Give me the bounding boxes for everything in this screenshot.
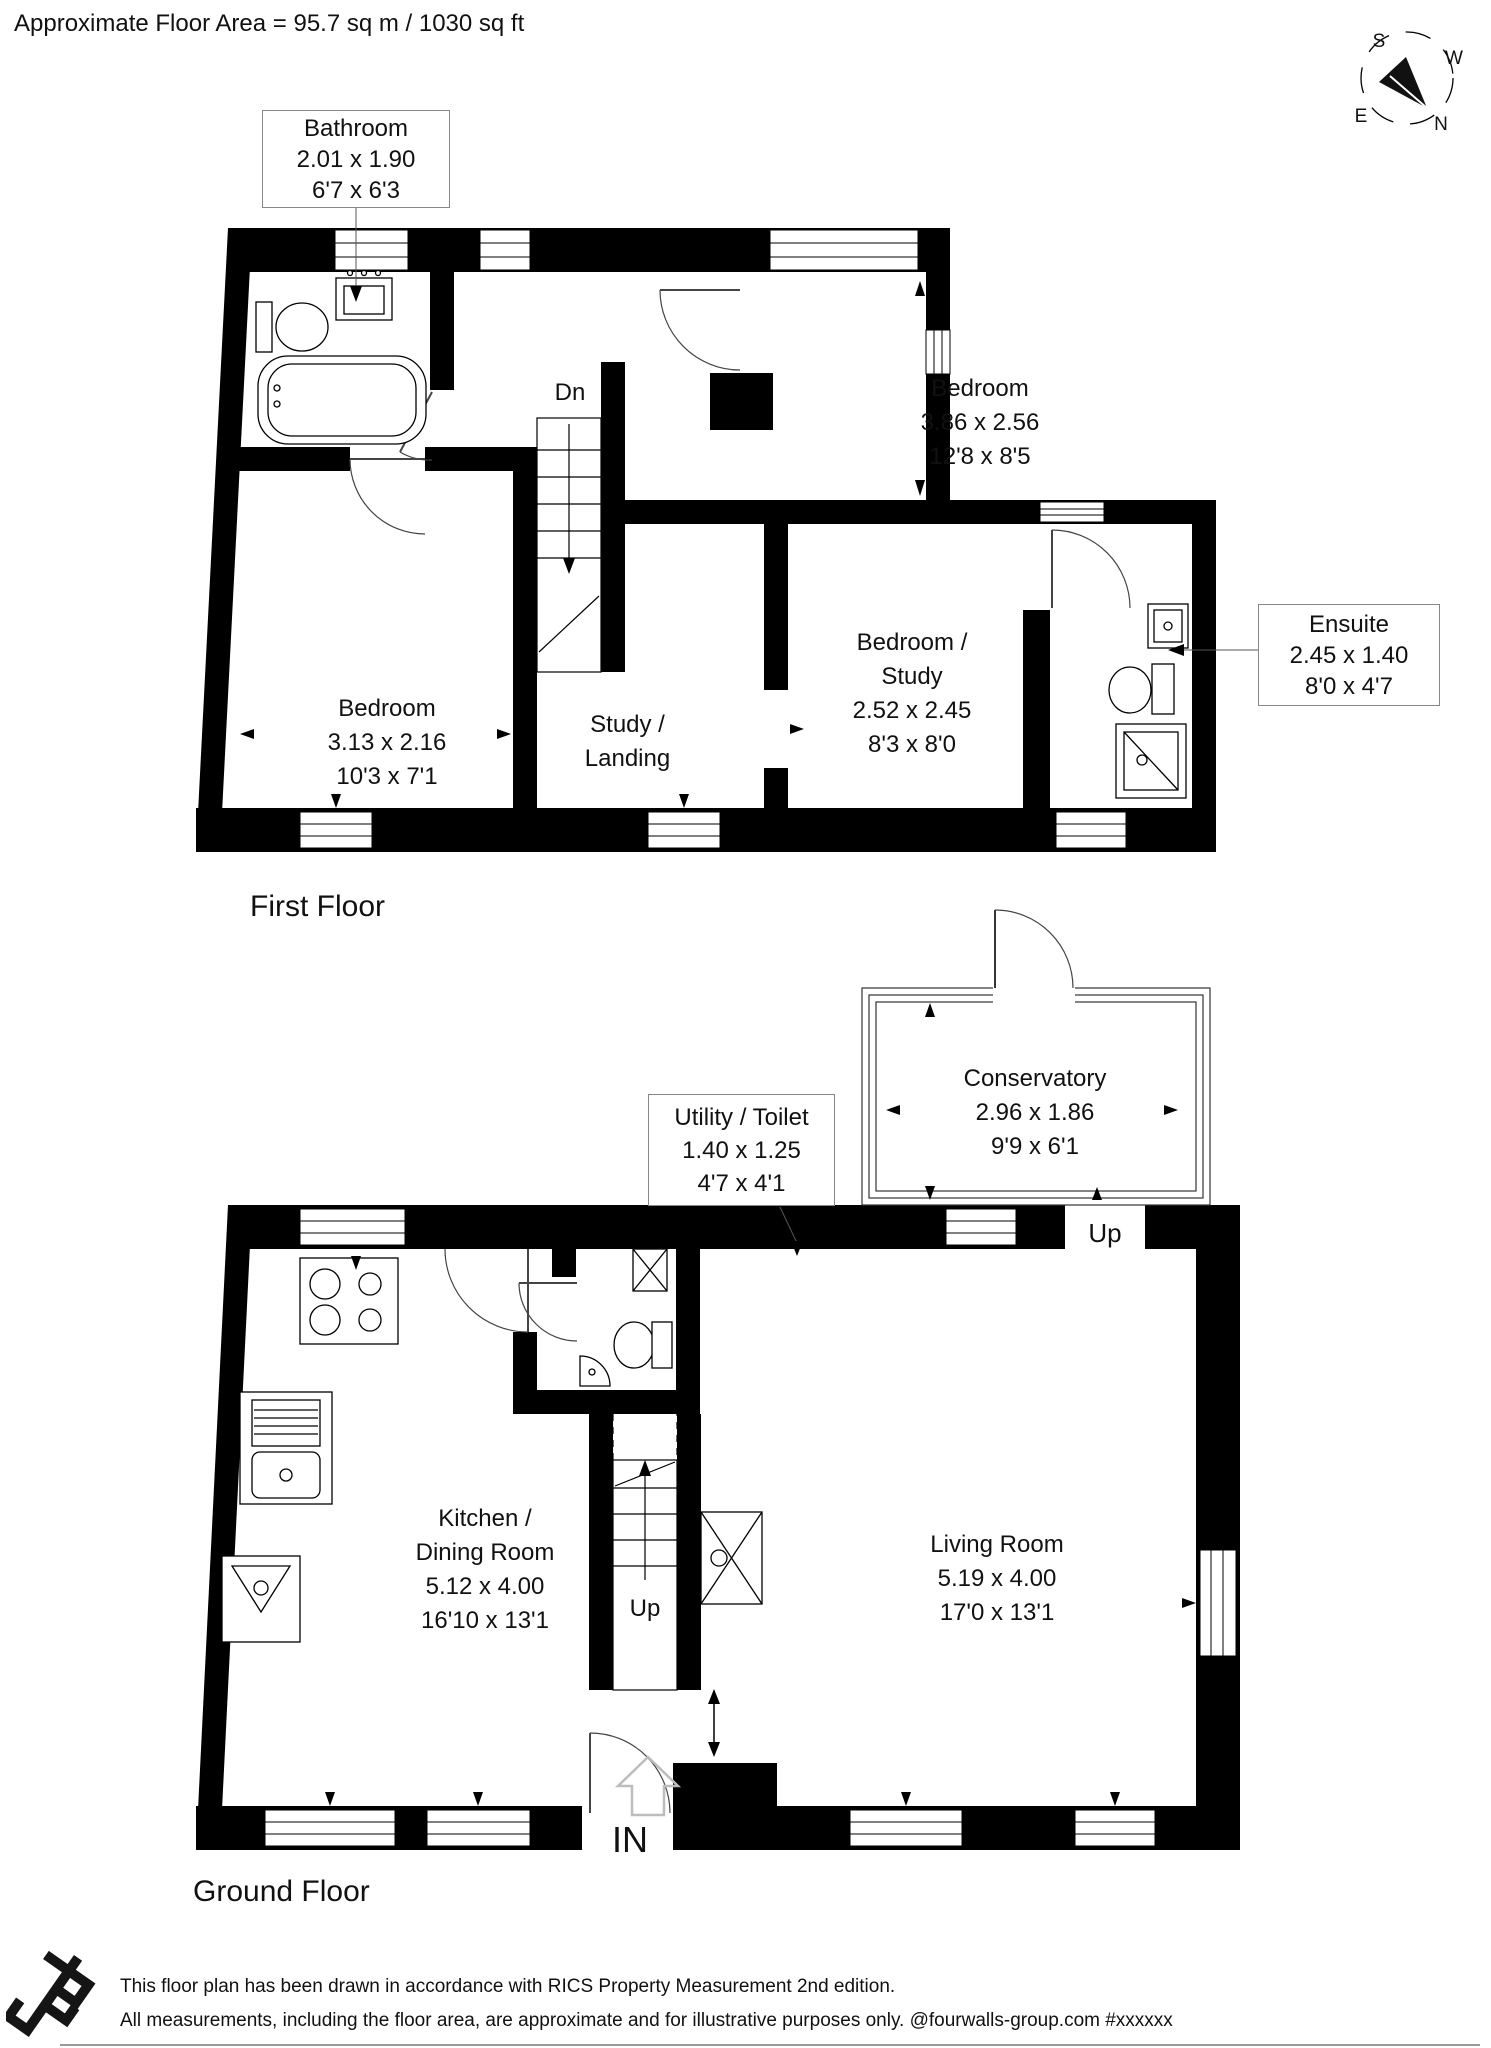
kitchen-dining-dims-m: 5.12 x 4.00 (355, 1570, 615, 1604)
wc-fixtures (580, 1249, 672, 1386)
compass-w: W (1445, 48, 1463, 69)
compass-s: S (1373, 31, 1386, 52)
ground-floor-stairs (613, 1408, 677, 1690)
conservatory-dims-ft: 9'9 x 6'1 (900, 1130, 1170, 1164)
kitchen-dining-label: Kitchen / Dining Room 5.12 x 4.00 16'10 … (355, 1502, 615, 1638)
bathroom-fixtures (256, 271, 426, 445)
bedroom-study-dims-ft: 8'3 x 8'0 (807, 728, 1017, 762)
utility-toilet-dims-ft: 4'7 x 4'1 (649, 1167, 834, 1200)
living-room-label: Living Room 5.19 x 4.00 17'0 x 13'1 (862, 1528, 1132, 1630)
bathroom-dims-m: 2.01 x 1.90 (263, 144, 449, 175)
bedroom-right-label: Bedroom 3.86 x 2.56 12'8 x 8'5 (850, 372, 1110, 474)
kitchen-dining-dims-ft: 16'10 x 13'1 (355, 1604, 615, 1638)
living-room-name: Living Room (862, 1528, 1132, 1562)
study-landing-line1: Study / (545, 708, 710, 742)
kitchen-dining-line2: Dining Room (355, 1536, 615, 1570)
conservatory-name: Conservatory (900, 1062, 1170, 1096)
fireplace (701, 1512, 762, 1604)
stairs-up-label: Up (615, 1592, 675, 1626)
kitchen-dining-line1: Kitchen / (355, 1502, 615, 1536)
fourwalls-logo-icon (6, 1948, 96, 2048)
ensuite-name: Ensuite (1259, 609, 1439, 640)
conservatory-label: Conservatory 2.96 x 1.86 9'9 x 6'1 (900, 1062, 1170, 1164)
bedroom-left-dims-ft: 10'3 x 7'1 (262, 760, 512, 794)
bedroom-right-dims-m: 3.86 x 2.56 (850, 406, 1110, 440)
compass-e: E (1355, 106, 1368, 127)
study-landing-line2: Landing (545, 742, 710, 776)
floorplan-page: S W E N Approximate Floor Area = 95.7 sq… (0, 0, 1491, 2048)
compass-n: N (1434, 114, 1448, 135)
bathroom-label: Bathroom 2.01 x 1.90 6'7 x 6'3 (262, 110, 450, 208)
ensuite-label: Ensuite 2.45 x 1.40 8'0 x 4'7 (1258, 604, 1440, 706)
living-room-dims-ft: 17'0 x 13'1 (862, 1596, 1132, 1630)
utility-toilet-name: Utility / Toilet (649, 1101, 834, 1134)
ensuite-fixtures (1109, 604, 1188, 798)
stairs-down-label: Dn (540, 376, 600, 410)
conservatory-entry-up-label: Up (1065, 1220, 1145, 1246)
bedroom-left-dims-m: 3.13 x 2.16 (262, 726, 512, 760)
footer-rics-note: This floor plan has been drawn in accord… (120, 1976, 895, 1998)
utility-toilet-label: Utility / Toilet 1.40 x 1.25 4'7 x 4'1 (648, 1094, 835, 1206)
floor-area-title: Approximate Floor Area = 95.7 sq m / 103… (14, 10, 524, 38)
bedroom-left-label: Bedroom 3.13 x 2.16 10'3 x 7'1 (262, 692, 512, 794)
compass-icon: S W E N (1330, 10, 1490, 140)
bedroom-right-name: Bedroom (850, 372, 1110, 406)
bathroom-name: Bathroom (263, 113, 449, 144)
compass-needle (1379, 57, 1427, 108)
first-floor-title: First Floor (250, 890, 385, 924)
living-room-dims-m: 5.19 x 4.00 (862, 1562, 1132, 1596)
bedroom-study-line2: Study (807, 660, 1017, 694)
bedroom-left-name: Bedroom (262, 692, 512, 726)
study-landing-label: Study / Landing (545, 708, 710, 776)
utility-toilet-dims-m: 1.40 x 1.25 (649, 1134, 834, 1167)
bedroom-right-dims-ft: 12'8 x 8'5 (850, 440, 1110, 474)
bathroom-dims-ft: 6'7 x 6'3 (263, 175, 449, 206)
footer-disclaimer: All measurements, including the floor ar… (120, 2010, 1173, 2032)
floorplan-linework (0, 0, 1491, 2048)
entrance-in-label: IN (590, 1822, 670, 1858)
ensuite-dims-ft: 8'0 x 4'7 (1259, 671, 1439, 702)
ensuite-dims-m: 2.45 x 1.40 (1259, 640, 1439, 671)
first-floor-stairs (537, 418, 601, 672)
bedroom-study-line1: Bedroom / (807, 626, 1017, 660)
ground-floor-title: Ground Floor (193, 1875, 370, 1909)
bedroom-study-dims-m: 2.52 x 2.45 (807, 694, 1017, 728)
bedroom-study-label: Bedroom / Study 2.52 x 2.45 8'3 x 8'0 (807, 626, 1017, 762)
conservatory-dims-m: 2.96 x 1.86 (900, 1096, 1170, 1130)
